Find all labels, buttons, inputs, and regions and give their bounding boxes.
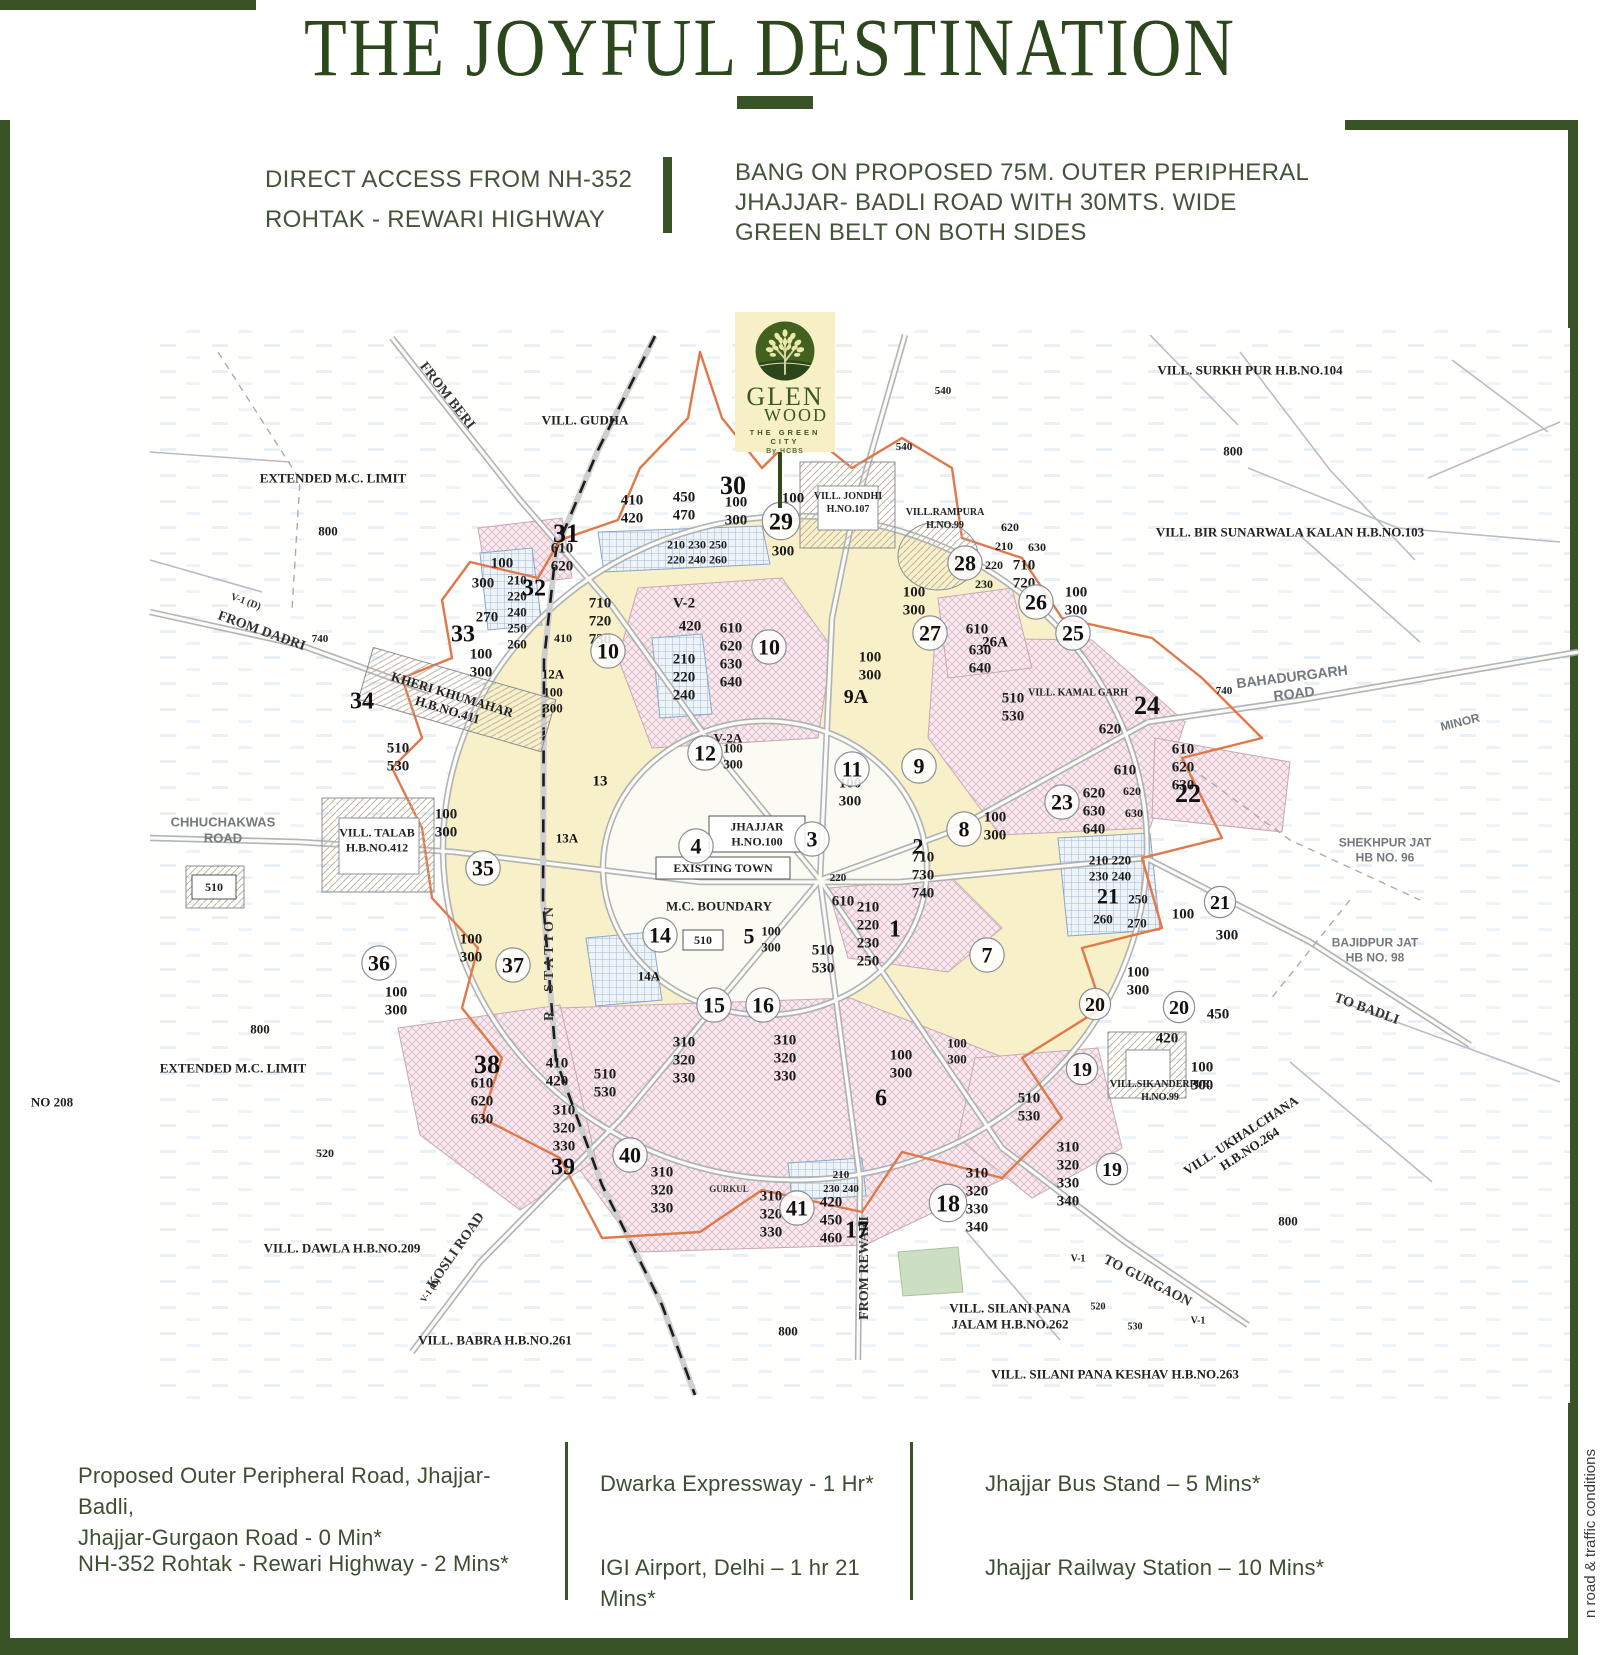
svg-text:30: 30 xyxy=(720,471,746,500)
svg-text:JHAJJARH.NO.100: JHAJJARH.NO.100 xyxy=(730,820,784,849)
svg-text:NO 208: NO 208 xyxy=(31,1095,74,1110)
svg-text:EXISTING TOWN: EXISTING TOWN xyxy=(673,861,773,875)
svg-text:610: 610 xyxy=(832,893,855,909)
logo-tagline: THE GREEN CITY xyxy=(735,428,835,446)
svg-text:V-1: V-1 xyxy=(1191,1316,1206,1327)
svg-text:15: 15 xyxy=(703,993,725,1018)
svg-text:34: 34 xyxy=(350,688,374,714)
svg-text:540: 540 xyxy=(935,385,952,397)
svg-text:420: 420 xyxy=(679,618,702,634)
svg-text:800: 800 xyxy=(318,524,338,539)
svg-text:450: 450 xyxy=(1207,1006,1230,1022)
svg-text:530: 530 xyxy=(1128,1322,1143,1333)
svg-text:250: 250 xyxy=(1128,892,1148,907)
svg-text:38: 38 xyxy=(474,1050,500,1079)
svg-text:300: 300 xyxy=(472,575,495,591)
svg-text:220: 220 xyxy=(985,558,1003,572)
svg-text:310320330: 310320330 xyxy=(553,1102,576,1154)
svg-text:270: 270 xyxy=(476,609,499,625)
svg-text:36: 36 xyxy=(368,951,390,976)
svg-text:GURKUL: GURKUL xyxy=(709,1184,749,1194)
svg-text:VILL. BABRA H.B.NO.261: VILL. BABRA H.B.NO.261 xyxy=(418,1333,572,1348)
svg-text:22: 22 xyxy=(1175,779,1201,808)
svg-text:11: 11 xyxy=(842,757,863,782)
svg-text:210 220230 240: 210 220230 240 xyxy=(1089,853,1131,884)
svg-text:21: 21 xyxy=(1097,884,1119,909)
column-divider xyxy=(910,1442,913,1600)
logo-name-bottom: WOOD xyxy=(757,408,835,423)
logo-pointer-line xyxy=(778,452,782,508)
svg-text:520: 520 xyxy=(1091,1302,1106,1313)
svg-text:VILL. DAWLA H.B.NO.209: VILL. DAWLA H.B.NO.209 xyxy=(264,1241,421,1256)
master-plan-map: 4104204504701003001003006106201003002102… xyxy=(0,0,1600,1655)
svg-text:310320330: 310320330 xyxy=(760,1188,783,1240)
svg-text:23: 23 xyxy=(1051,790,1073,815)
svg-text:28: 28 xyxy=(954,551,976,576)
svg-text:17: 17 xyxy=(845,1217,869,1243)
svg-text:25: 25 xyxy=(1062,621,1084,646)
svg-text:V-1: V-1 xyxy=(1071,1254,1086,1265)
svg-text:300: 300 xyxy=(772,543,795,559)
svg-text:210: 210 xyxy=(995,539,1013,553)
svg-text:740: 740 xyxy=(1216,685,1233,697)
svg-text:620: 620 xyxy=(1099,721,1122,737)
svg-text:VILL. GUDHA: VILL. GUDHA xyxy=(542,413,629,428)
svg-text:610: 610 xyxy=(1114,762,1137,778)
svg-text:VILL. KAMAL GARH: VILL. KAMAL GARH xyxy=(1028,688,1128,699)
distance-item: Jhajjar Railway Station – 10 Mins* xyxy=(985,1552,1325,1583)
svg-text:27: 27 xyxy=(919,621,941,646)
svg-text:EXTENDED M.C. LIMIT: EXTENDED M.C. LIMIT xyxy=(260,471,407,486)
svg-text:6: 6 xyxy=(875,1085,887,1111)
distances-section: Proposed Outer Peripheral Road, Jhajjar-… xyxy=(0,1440,1578,1640)
svg-text:32: 32 xyxy=(522,575,546,601)
svg-text:M.C. BOUNDARY: M.C. BOUNDARY xyxy=(666,899,773,914)
logo-byline: By HCBS xyxy=(735,448,835,455)
svg-text:520: 520 xyxy=(316,1146,334,1160)
svg-text:20: 20 xyxy=(1169,997,1189,1019)
svg-text:41: 41 xyxy=(786,1196,808,1221)
distance-item: Dwarka Expressway - 1 Hr* xyxy=(600,1468,900,1499)
svg-text:12: 12 xyxy=(694,741,716,766)
svg-text:31: 31 xyxy=(553,519,579,548)
svg-text:19: 19 xyxy=(1102,1159,1122,1181)
svg-text:100300: 100300 xyxy=(947,1036,967,1067)
svg-text:29: 29 xyxy=(769,509,793,535)
svg-text:800: 800 xyxy=(250,1022,270,1037)
svg-text:260: 260 xyxy=(1093,912,1113,927)
svg-text:18: 18 xyxy=(936,1191,960,1217)
svg-text:21: 21 xyxy=(1210,892,1230,914)
svg-text:8: 8 xyxy=(959,817,970,842)
svg-text:2: 2 xyxy=(913,834,924,859)
svg-text:620: 620 xyxy=(1001,520,1019,534)
svg-text:VILL. BIR SUNARWALA KALAN H: VILL. BIR SUNARWALA KALAN H.B.NO.103 xyxy=(1156,525,1425,540)
svg-text:VILL. SURKH PUR H.B.NO.104: VILL. SURKH PUR H.B.NO.104 xyxy=(1157,363,1343,378)
svg-text:19: 19 xyxy=(1072,1059,1092,1081)
svg-text:210 230 250220 240 260: 210 230 250220 240 260 xyxy=(667,538,727,567)
svg-text:9: 9 xyxy=(914,754,925,779)
svg-text:510: 510 xyxy=(694,933,712,947)
svg-text:35: 35 xyxy=(472,856,494,881)
svg-text:V-2: V-2 xyxy=(673,595,695,611)
svg-text:310320330: 310320330 xyxy=(774,1032,797,1084)
distance-item: NH-352 Rohtak - Rewari Highway - 2 Mins* xyxy=(78,1548,548,1579)
svg-text:610620630: 610620630 xyxy=(471,1075,494,1127)
svg-text:310320330: 310320330 xyxy=(673,1034,696,1086)
svg-text:3: 3 xyxy=(807,827,818,852)
svg-text:20: 20 xyxy=(1085,994,1105,1016)
svg-text:37: 37 xyxy=(502,953,524,978)
svg-text:800: 800 xyxy=(1278,1214,1298,1229)
svg-text:33: 33 xyxy=(451,621,475,647)
svg-text:14A: 14A xyxy=(638,969,661,984)
svg-text:10: 10 xyxy=(597,639,619,664)
svg-text:40: 40 xyxy=(619,1143,641,1168)
svg-text:410: 410 xyxy=(554,631,572,645)
svg-text:39: 39 xyxy=(551,1154,575,1180)
svg-text:800: 800 xyxy=(778,1324,798,1339)
svg-text:100300: 100300 xyxy=(543,685,563,716)
svg-text:300: 300 xyxy=(1216,927,1239,943)
svg-text:210220240: 210220240 xyxy=(673,651,696,703)
svg-text:1: 1 xyxy=(889,916,901,942)
column-divider xyxy=(565,1442,568,1600)
svg-text:4: 4 xyxy=(691,834,702,859)
svg-text:VILL. TALABH.B.NO.412: VILL. TALABH.B.NO.412 xyxy=(339,826,415,855)
svg-text:740: 740 xyxy=(312,633,329,645)
svg-text:26: 26 xyxy=(1025,590,1047,615)
svg-text:100: 100 xyxy=(1172,906,1195,922)
distance-item: IGI Airport, Delhi – 1 hr 21 Mins* xyxy=(600,1552,900,1614)
svg-text:26A: 26A xyxy=(982,634,1008,650)
svg-text:16: 16 xyxy=(752,993,774,1018)
svg-text:220: 220 xyxy=(830,872,847,884)
svg-text:R. STATION: R. STATION xyxy=(542,903,557,1021)
svg-text:270: 270 xyxy=(1127,916,1147,931)
svg-text:5: 5 xyxy=(744,924,755,949)
svg-text:13: 13 xyxy=(593,773,608,789)
svg-text:100300: 100300 xyxy=(723,741,743,772)
tree-icon xyxy=(753,319,817,383)
distance-item: Proposed Outer Peripheral Road, Jhajjar-… xyxy=(78,1460,548,1553)
svg-text:540: 540 xyxy=(896,441,913,453)
svg-text:VILL. SILANI PANA KESHAV H.B.: VILL. SILANI PANA KESHAV H.B.NO.263 xyxy=(991,1367,1239,1382)
svg-text:420450460: 420450460 xyxy=(820,1194,843,1246)
svg-text:EXTENDED M.C. LIMIT: EXTENDED M.C. LIMIT xyxy=(160,1061,307,1076)
svg-text:620: 620 xyxy=(1123,784,1141,798)
side-note: n road & traffic conditions xyxy=(1582,1378,1599,1618)
svg-text:800: 800 xyxy=(1223,444,1243,459)
svg-text:10: 10 xyxy=(758,635,780,660)
svg-text:9A: 9A xyxy=(844,686,869,708)
svg-text:630: 630 xyxy=(1125,806,1143,820)
svg-text:12A: 12A xyxy=(542,667,565,682)
svg-text:230: 230 xyxy=(975,577,993,591)
svg-text:620630640: 620630640 xyxy=(1083,785,1106,837)
svg-text:100: 100 xyxy=(491,555,514,571)
svg-text:510: 510 xyxy=(205,880,223,894)
svg-text:630: 630 xyxy=(1028,540,1046,554)
glenwood-logo: GLEN WOOD THE GREEN CITY By HCBS xyxy=(735,312,835,452)
distance-item: Jhajjar Bus Stand – 5 Mins* xyxy=(985,1468,1315,1499)
svg-text:7: 7 xyxy=(982,943,993,968)
svg-text:310320330: 310320330 xyxy=(651,1164,674,1216)
svg-text:100300: 100300 xyxy=(761,924,781,955)
svg-text:VILL. SILANI PANAJALAM H.B.NO.: VILL. SILANI PANAJALAM H.B.NO.262 xyxy=(949,1301,1071,1332)
svg-text:14: 14 xyxy=(649,923,671,948)
svg-text:13A: 13A xyxy=(556,831,579,846)
svg-text:420: 420 xyxy=(1156,1030,1179,1046)
joyful-destination-poster: THE JOYFUL DESTINATION DIRECT ACCESS FRO… xyxy=(0,0,1600,1655)
svg-text:24: 24 xyxy=(1134,691,1160,720)
